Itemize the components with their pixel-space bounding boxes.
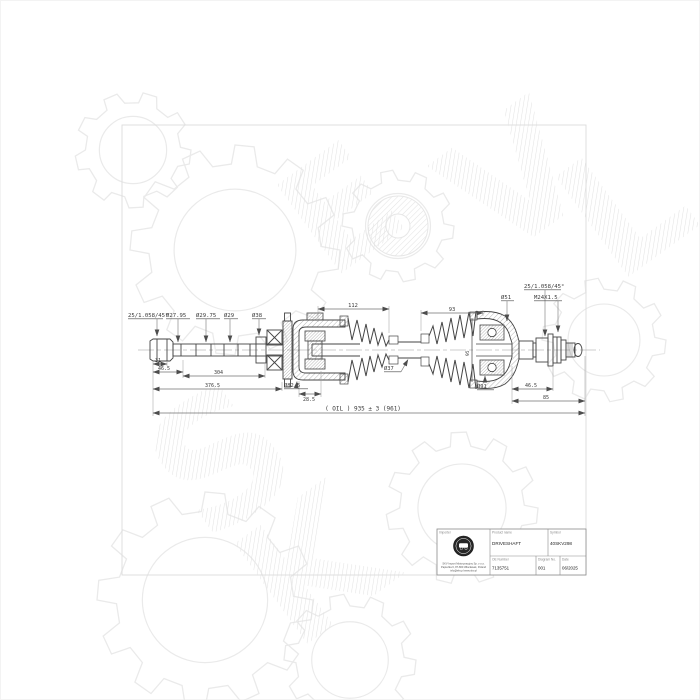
date-label: Date [562, 558, 569, 562]
ball-bearing [488, 363, 496, 371]
importer-label: Importer [439, 531, 452, 535]
title-block: Importer SKV Import Motoryzacyjny Sp. z … [437, 529, 586, 575]
ball-bearing [488, 328, 496, 336]
watermark-layer: E V L S K [75, 65, 700, 700]
label-d82-5: Ø82.5 [284, 382, 300, 389]
importer-address-line3: info@skv.pl www.skv.pl [450, 569, 477, 573]
date-value: 06/2025 [562, 566, 578, 571]
dim-right-boot: 93 [449, 307, 456, 313]
grease-cap [307, 313, 323, 320]
label-d51: Ø51 [501, 294, 511, 301]
label-right-chamfer: 25/1.058/45° [524, 284, 564, 290]
symbol-value: 40SKV298 [550, 541, 572, 546]
label-left-chamfer: 25/1.058/45° [128, 313, 168, 319]
diagram-no-label: Diagram No. [538, 558, 556, 562]
brand-logo [454, 536, 474, 556]
label-d91: Ø91 [477, 383, 487, 390]
dim-right-total: 85 [543, 395, 549, 401]
symbol-label: Symbol [550, 531, 561, 535]
dim-overall-length: ( OIL ) 935 ± 3 (961) [325, 406, 401, 413]
product-name-label: Product name [492, 531, 512, 535]
importer-address-line2: Papieżka 6, 87-800 Włocławek, Poland [441, 565, 487, 569]
dim-left-total: 376.5 [205, 383, 220, 389]
importer-address-line1: SKV Import Motoryzacyjny Sp. z o.o. [442, 562, 485, 566]
dim-plunge: 28.5 [303, 397, 315, 403]
car-silhouette-icon [459, 543, 468, 548]
product-name-value: DRIVESHAFT [492, 541, 521, 546]
label-d37: Ø37 [384, 365, 394, 372]
label-d29-75: Ø29.75 [196, 312, 216, 319]
label-d29: Ø29 [224, 312, 234, 319]
dim-shaft-length: 304 [214, 370, 223, 376]
dim-left-seat: 46.5 [158, 366, 170, 372]
oe-number-label: OE Number [492, 558, 510, 562]
label-d38: Ø38 [252, 312, 263, 319]
diagram-no-value: 001 [538, 566, 546, 571]
drawing-sheet: E V L S K [0, 0, 700, 700]
label-thread-m24: M24X1.5 [534, 295, 558, 301]
dim-right-seat: 46.5 [525, 383, 537, 389]
dim-joint-side: 95 [465, 350, 471, 356]
dim-left-boot: 112 [348, 303, 358, 309]
label-d27-95: Ø27.95 [166, 312, 186, 319]
technical-drawing-svg: E V L S K [0, 0, 700, 700]
dim-spline-length: 31 [155, 358, 161, 364]
oe-number-value: 7135751 [492, 566, 510, 571]
